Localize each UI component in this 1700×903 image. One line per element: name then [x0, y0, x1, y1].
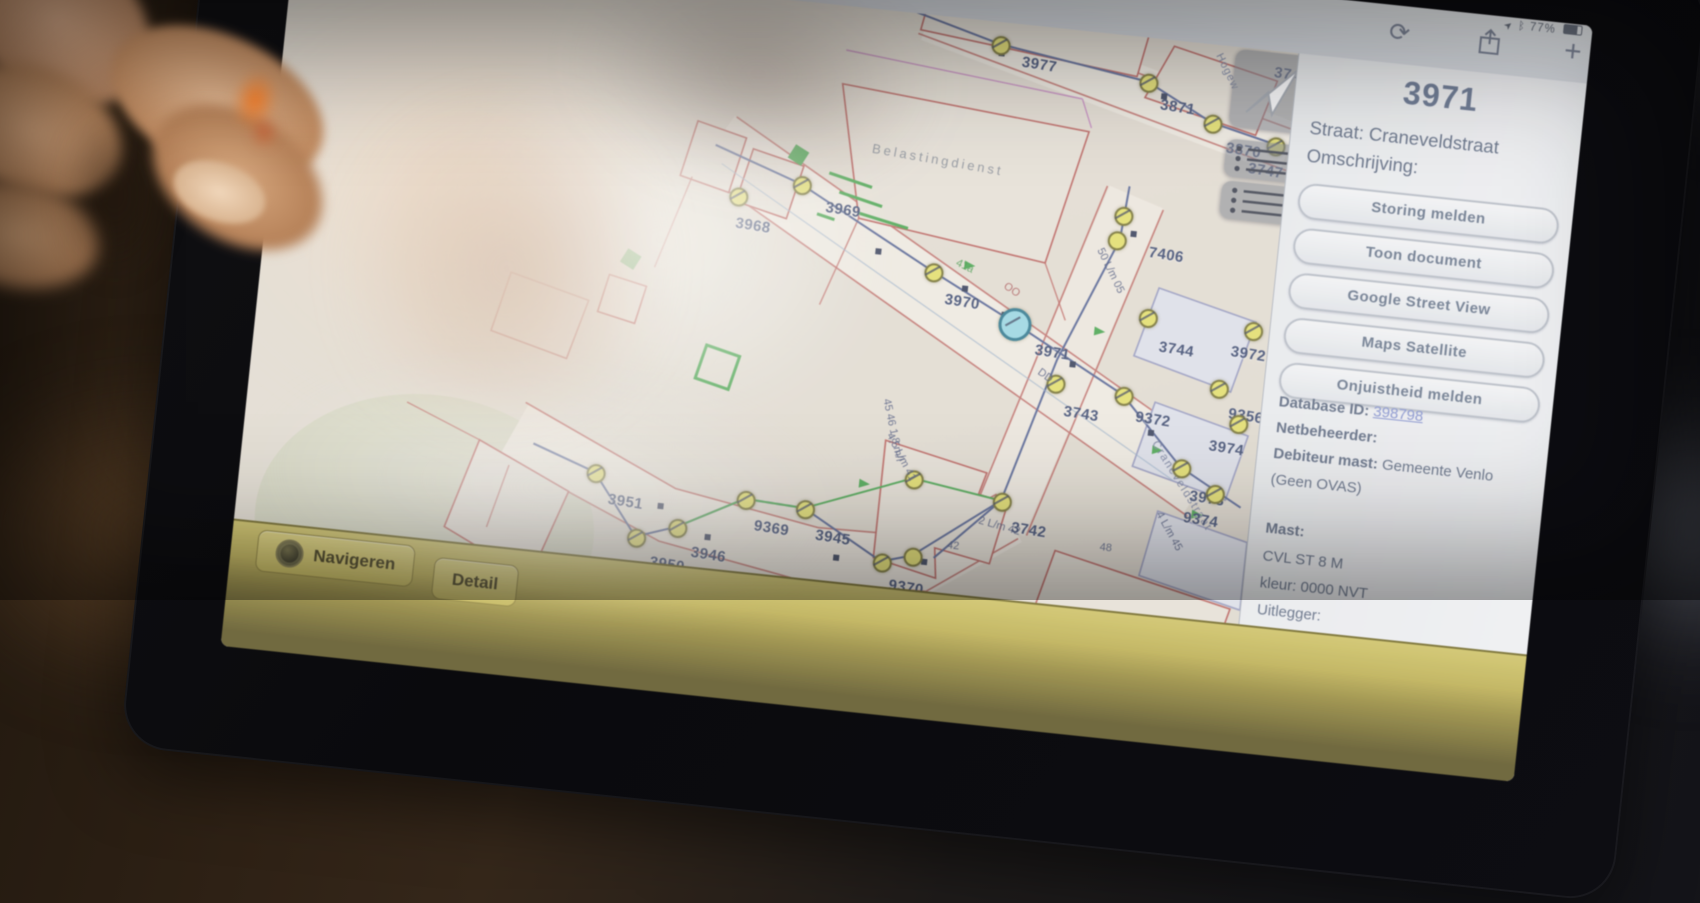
refresh-button[interactable]: ⟳	[1388, 17, 1412, 49]
map-point-label: 3945	[814, 527, 852, 549]
tablet-screen: ➤ ᛒ 77% ⟳ +	[221, 0, 1593, 782]
map-point-3971[interactable]	[997, 306, 1033, 342]
share-icon	[1477, 27, 1502, 57]
map-annotation: 50 L/m 05	[1094, 246, 1126, 295]
map-annotation: 2 L/m 42	[977, 515, 1021, 538]
share-button[interactable]	[1477, 27, 1502, 62]
map-point-label: 3968	[734, 215, 772, 237]
map-point-label: 3744	[1158, 338, 1196, 360]
panel-details: Database ID: 398798Netbeheerder: Debiteu…	[1269, 389, 1500, 516]
tab-navigeren[interactable]: Navigeren	[255, 529, 417, 587]
map-annotation: 41a	[954, 257, 976, 276]
map-point-label: 9374	[1182, 509, 1220, 531]
map-annotation: 48	[1099, 541, 1112, 554]
map-point-label: 7406	[1147, 244, 1185, 266]
map-point-label: 3971	[1034, 342, 1072, 364]
description-line: Omschrijving:	[1306, 145, 1420, 179]
compass-icon	[274, 538, 305, 569]
tab-label: Detail	[451, 570, 499, 595]
detail-value: (Geen OVAS)	[1270, 471, 1363, 497]
map-point-label: 3969	[824, 199, 862, 221]
mast-lines: CVL ST 8 Mkleur: 0000 NVTUitlegger:	[1256, 542, 1372, 634]
map-annotation: 42	[946, 539, 959, 552]
location-arrow-icon: ➤	[1502, 18, 1516, 32]
map-point-label: 3977	[1021, 54, 1059, 76]
tab-label: Navigeren	[312, 546, 396, 574]
finger	[0, 0, 184, 142]
battery-percent: 77%	[1529, 21, 1556, 36]
mast-section: Mast: CVL ST 8 Mkleur: 0000 NVTUitlegger…	[1256, 515, 1375, 635]
map-point-label: 3743	[1062, 403, 1100, 425]
map-point-label: 3972	[1230, 343, 1268, 365]
navigation-arrow-icon	[1228, 49, 1298, 135]
bluetooth-icon: ᛒ	[1517, 19, 1526, 33]
map-point-label: 3871	[1159, 96, 1197, 118]
map-point-9370[interactable]	[903, 547, 924, 568]
map-point-label: 3970	[943, 291, 981, 313]
map-point-label: 9369	[753, 517, 791, 539]
map-point-7406[interactable]	[1107, 230, 1128, 251]
map-point-label: 3974	[1208, 437, 1246, 459]
finger	[0, 38, 142, 223]
database-id-link[interactable]: 398798	[1373, 403, 1425, 425]
hand-shadow	[62, 110, 167, 280]
map-point-label: 3946	[690, 544, 728, 566]
map-annotation: 4 L/m 45	[1153, 510, 1184, 553]
new-tab-button[interactable]: +	[1562, 34, 1583, 70]
map-point-label: 3951	[607, 491, 645, 513]
map-point-label: 9372	[1134, 408, 1172, 430]
finger	[0, 166, 109, 303]
map-annotation: OO	[1001, 280, 1022, 300]
locate-me-button[interactable]	[1228, 49, 1298, 135]
map-annotation: 45 46 1,8 m/l	[880, 398, 905, 463]
